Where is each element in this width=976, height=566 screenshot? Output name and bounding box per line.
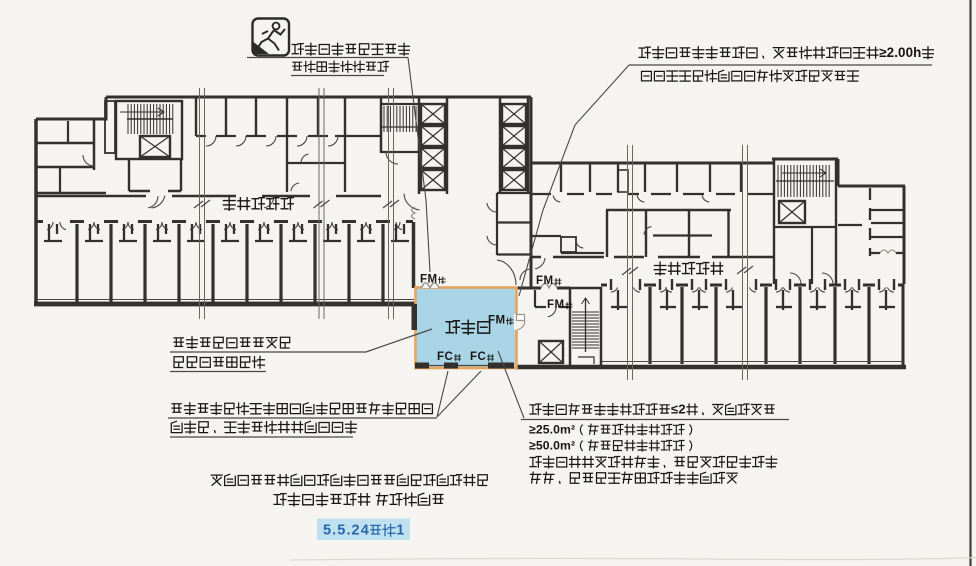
svg-text:FC: FC — [437, 351, 453, 363]
svg-text:FM: FM — [547, 299, 564, 311]
svg-text:≥25.0m²: ≥25.0m² — [529, 423, 575, 437]
svg-text:FM: FM — [488, 314, 505, 326]
svg-text:≥2.00h: ≥2.00h — [879, 45, 921, 60]
svg-text:5.5.24: 5.5.24 — [323, 522, 369, 538]
svg-text:FC: FC — [470, 351, 486, 363]
svg-text:FM: FM — [420, 273, 437, 285]
svg-text:FM: FM — [536, 275, 553, 287]
svg-text:1: 1 — [396, 522, 404, 538]
svg-text:≤2: ≤2 — [671, 402, 686, 417]
svg-text:≥50.0m²: ≥50.0m² — [529, 439, 575, 453]
